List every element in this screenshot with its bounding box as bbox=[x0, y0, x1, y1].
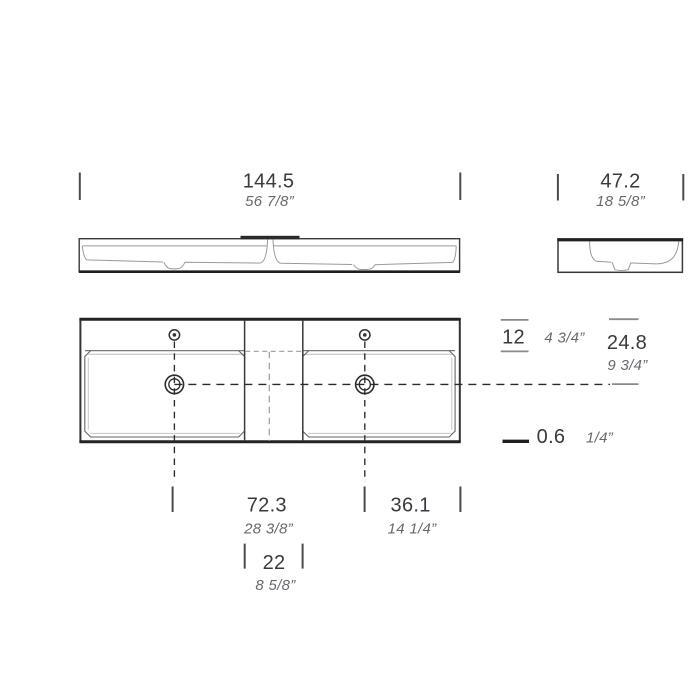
svg-text:1/4”: 1/4” bbox=[586, 429, 614, 446]
svg-text:24.8: 24.8 bbox=[607, 332, 647, 354]
svg-text:144.5: 144.5 bbox=[243, 171, 295, 193]
svg-text:47.2: 47.2 bbox=[600, 171, 640, 193]
svg-text:12: 12 bbox=[502, 326, 525, 348]
svg-text:8 5/8”: 8 5/8” bbox=[255, 577, 296, 594]
svg-text:18 5/8”: 18 5/8” bbox=[596, 193, 646, 210]
svg-text:0.6: 0.6 bbox=[537, 426, 566, 448]
svg-text:9 3/4”: 9 3/4” bbox=[607, 357, 648, 374]
svg-text:36.1: 36.1 bbox=[391, 495, 431, 517]
svg-text:56 7/8”: 56 7/8” bbox=[245, 193, 295, 210]
svg-text:72.3: 72.3 bbox=[247, 495, 287, 517]
svg-text:28 3/8”: 28 3/8” bbox=[243, 521, 294, 538]
svg-text:14 1/4”: 14 1/4” bbox=[388, 521, 438, 538]
svg-text:4 3/4”: 4 3/4” bbox=[544, 330, 585, 347]
svg-text:22: 22 bbox=[263, 552, 286, 574]
